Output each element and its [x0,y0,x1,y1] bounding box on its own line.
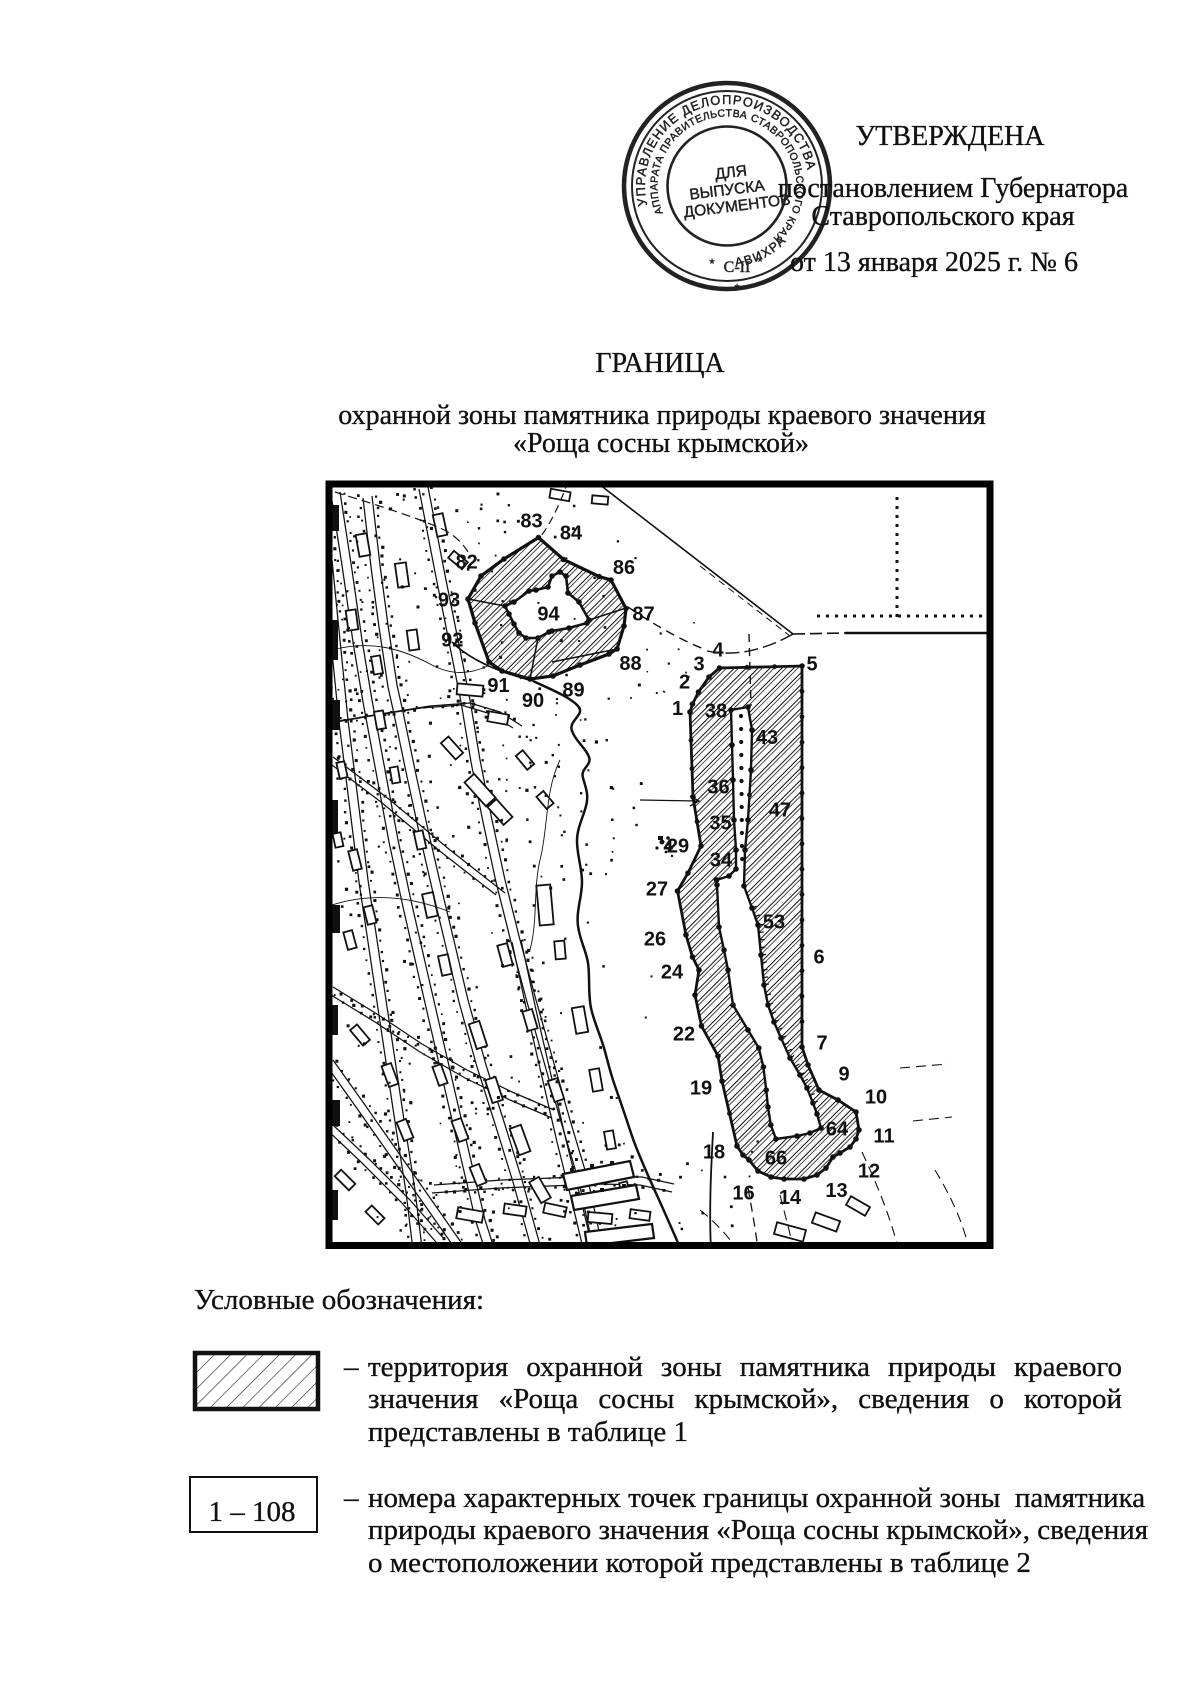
svg-text:2: 2 [679,672,690,694]
svg-text:88: 88 [619,653,641,675]
svg-text:94: 94 [537,604,560,626]
svg-text:87: 87 [632,604,654,626]
svg-text:12: 12 [858,1161,880,1183]
svg-text:43: 43 [756,727,778,749]
svg-text:64: 64 [826,1119,849,1141]
svg-text:84: 84 [560,523,583,545]
svg-text:7: 7 [816,1033,827,1055]
svg-text:34: 34 [710,850,733,872]
svg-text:*: * [709,256,714,271]
svg-text:4: 4 [712,640,724,662]
svg-text:29: 29 [667,836,689,858]
svg-text:36: 36 [707,777,729,799]
svg-text:47: 47 [769,800,791,822]
svg-text:5: 5 [806,654,817,676]
svg-text:С-II: С-II [724,259,751,276]
svg-text:14: 14 [779,1187,802,1209]
svg-text:82: 82 [456,552,478,574]
svg-text:90: 90 [522,690,544,712]
svg-text:3: 3 [693,654,704,676]
svg-text:35: 35 [709,813,731,835]
svg-text:10: 10 [865,1087,887,1109]
svg-text:26: 26 [644,929,666,951]
svg-text:92: 92 [441,630,463,652]
svg-text:86: 86 [613,557,635,579]
svg-text:89: 89 [562,680,584,702]
svg-text:*: * [757,254,762,269]
svg-text:38: 38 [705,701,727,723]
svg-text:*: * [734,281,739,296]
svg-text:11: 11 [873,1126,894,1148]
svg-text:91: 91 [487,675,509,697]
svg-text:93: 93 [438,590,460,612]
svg-text:24: 24 [661,962,684,984]
svg-text:13: 13 [825,1180,847,1202]
svg-text:66: 66 [765,1148,787,1170]
svg-text:18: 18 [703,1142,725,1164]
svg-text:19: 19 [690,1078,712,1100]
svg-text:22: 22 [673,1024,695,1046]
svg-text:1: 1 [672,698,683,720]
svg-text:16: 16 [732,1183,754,1205]
svg-text:6: 6 [813,947,824,969]
svg-text:27: 27 [646,879,668,901]
svg-text:83: 83 [520,511,542,533]
svg-text:9: 9 [838,1064,849,1086]
svg-text:53: 53 [763,912,785,934]
